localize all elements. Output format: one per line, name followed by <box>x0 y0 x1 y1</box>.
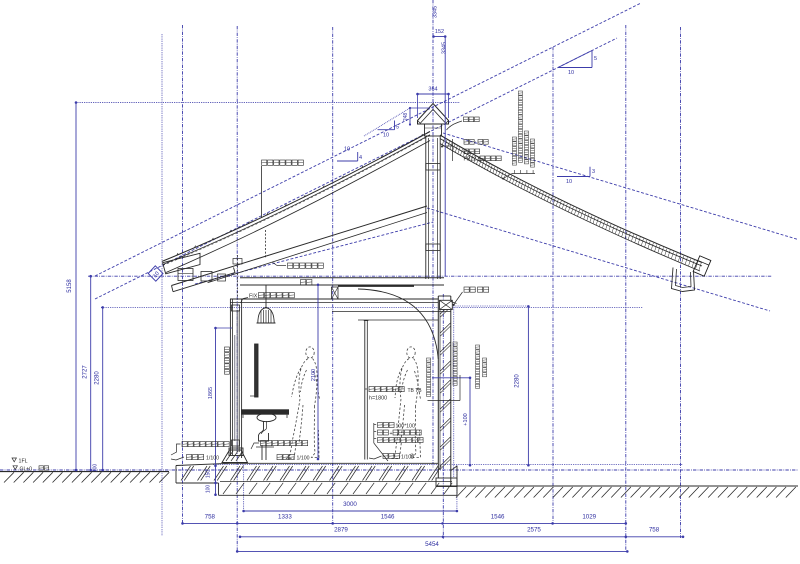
svg-text:GL±0: GL±0 <box>20 466 33 472</box>
svg-text:2727: 2727 <box>83 365 89 379</box>
svg-text:TB TB: TB TB <box>408 388 423 394</box>
svg-text:5: 5 <box>396 125 399 131</box>
svg-text:100*100: 100*100 <box>396 424 415 430</box>
svg-text:1FL: 1FL <box>19 459 28 465</box>
svg-text:2100: 2100 <box>311 369 317 381</box>
svg-text:152: 152 <box>435 29 444 35</box>
svg-text:1333: 1333 <box>278 513 292 520</box>
svg-text:10: 10 <box>383 133 389 139</box>
svg-text:+: + <box>390 431 393 437</box>
svg-text:100: 100 <box>206 485 212 494</box>
svg-text:PB12.5: PB12.5 <box>464 157 481 163</box>
svg-text:758: 758 <box>205 513 216 520</box>
svg-text:1/100: 1/100 <box>297 456 310 462</box>
svg-text::: : <box>475 288 476 294</box>
svg-text:3345: 3345 <box>433 6 439 18</box>
svg-text:5158: 5158 <box>67 279 73 293</box>
svg-text:10: 10 <box>568 70 574 76</box>
svg-text:2280: 2280 <box>95 371 101 385</box>
svg-text:1546: 1546 <box>491 513 505 520</box>
svg-text:1865: 1865 <box>208 387 214 399</box>
svg-text::: : <box>475 140 476 146</box>
svg-text:1546: 1546 <box>381 513 395 520</box>
svg-text:364: 364 <box>428 87 437 93</box>
svg-text:3: 3 <box>592 169 595 175</box>
svg-text:+100: +100 <box>463 413 469 425</box>
svg-text:3000: 3000 <box>343 501 357 508</box>
svg-text:10: 10 <box>566 179 572 185</box>
svg-text:3345: 3345 <box>442 42 448 54</box>
svg-text:2879: 2879 <box>334 527 348 534</box>
svg-text:4: 4 <box>359 155 362 161</box>
svg-text:h=1800: h=1800 <box>369 396 387 402</box>
svg-text:10: 10 <box>344 147 350 153</box>
svg-text:758: 758 <box>649 527 660 534</box>
svg-text:248: 248 <box>403 113 409 122</box>
svg-text:2280: 2280 <box>515 374 521 388</box>
svg-text:60: 60 <box>410 453 415 459</box>
svg-text:2575: 2575 <box>527 527 541 534</box>
svg-text:FIX: FIX <box>249 294 258 300</box>
svg-text:1029: 1029 <box>582 513 596 520</box>
svg-text:150: 150 <box>206 470 212 479</box>
svg-text:100: 100 <box>93 464 99 473</box>
svg-text:5454: 5454 <box>425 541 439 548</box>
svg-text:1/100: 1/100 <box>206 456 219 462</box>
svg-text:5: 5 <box>594 56 597 62</box>
